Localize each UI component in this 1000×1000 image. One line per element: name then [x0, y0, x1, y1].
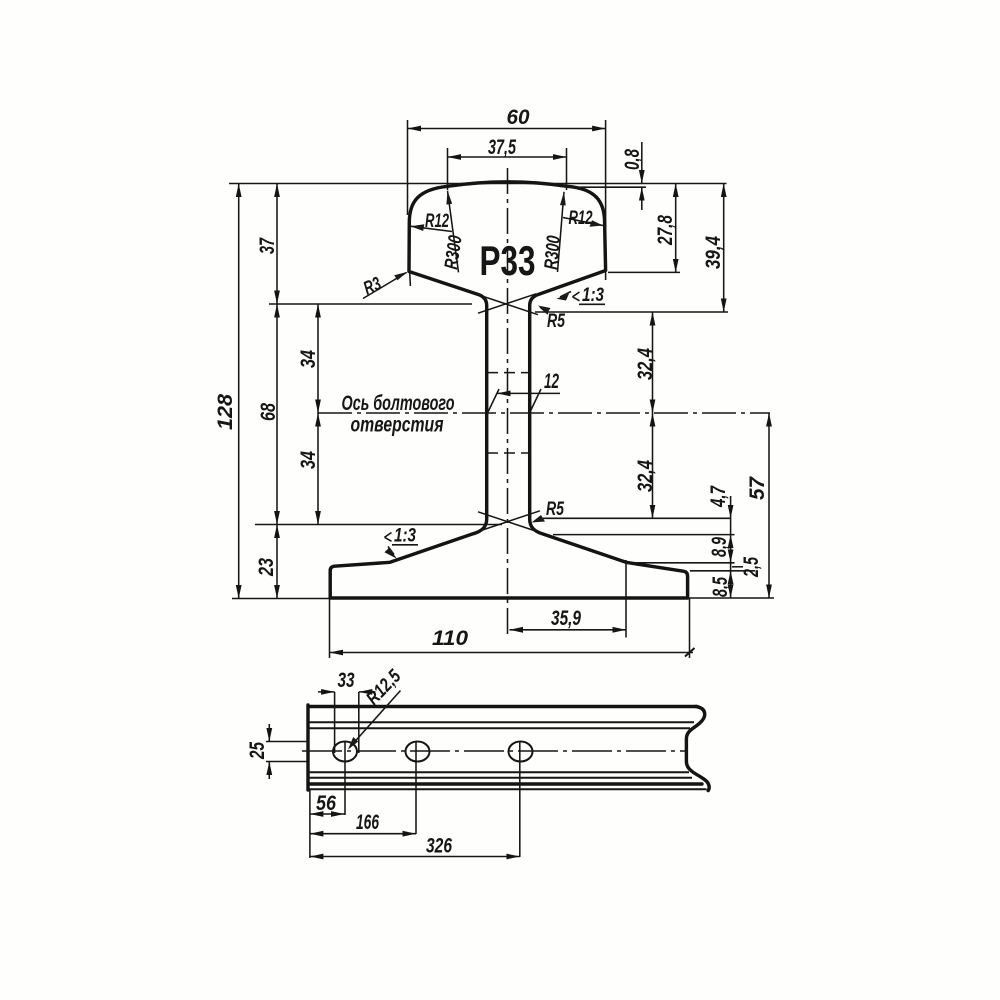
svg-text:27,8: 27,8 [654, 215, 677, 246]
svg-text:Ось болтового: Ось болтового [342, 392, 455, 415]
svg-text:12: 12 [544, 370, 559, 393]
svg-text:R5: R5 [546, 499, 564, 520]
svg-text:68: 68 [257, 403, 280, 421]
svg-text:37: 37 [256, 237, 279, 254]
svg-text:166: 166 [356, 811, 379, 834]
svg-text:57: 57 [746, 476, 769, 500]
svg-text:110: 110 [432, 627, 468, 650]
svg-text:33: 33 [338, 669, 355, 692]
svg-text:R300: R300 [541, 234, 565, 270]
svg-text:23: 23 [255, 558, 278, 577]
svg-text:128: 128 [214, 394, 237, 430]
svg-text:R300: R300 [441, 234, 467, 271]
svg-text:32,4: 32,4 [634, 460, 657, 492]
svg-text:Р33: Р33 [480, 237, 536, 284]
svg-text:отверстия: отверстия [351, 414, 444, 437]
svg-text:R3: R3 [360, 273, 384, 299]
svg-text:37,5: 37,5 [488, 136, 516, 159]
svg-text:4,7: 4,7 [707, 485, 730, 508]
svg-text:326: 326 [426, 835, 452, 858]
svg-text:8,5: 8,5 [709, 577, 732, 597]
svg-text:34: 34 [297, 350, 320, 368]
svg-text:35,9: 35,9 [551, 607, 581, 630]
svg-text:2,5: 2,5 [740, 557, 763, 578]
svg-text:60: 60 [507, 106, 530, 129]
svg-text:25: 25 [246, 742, 269, 760]
svg-text:34: 34 [297, 451, 320, 469]
svg-text:R12,5: R12,5 [362, 666, 405, 710]
svg-text:32,4: 32,4 [634, 348, 657, 380]
svg-text:R12: R12 [425, 211, 449, 232]
svg-text:0,8: 0,8 [621, 149, 644, 170]
svg-text:56: 56 [316, 792, 336, 815]
svg-text:8,9: 8,9 [708, 537, 731, 557]
svg-text:39,4: 39,4 [702, 236, 725, 269]
svg-text:1:3: 1:3 [582, 285, 604, 306]
svg-text:R12: R12 [569, 208, 593, 229]
svg-text:R5: R5 [547, 311, 565, 332]
svg-text:1:3: 1:3 [394, 526, 416, 547]
